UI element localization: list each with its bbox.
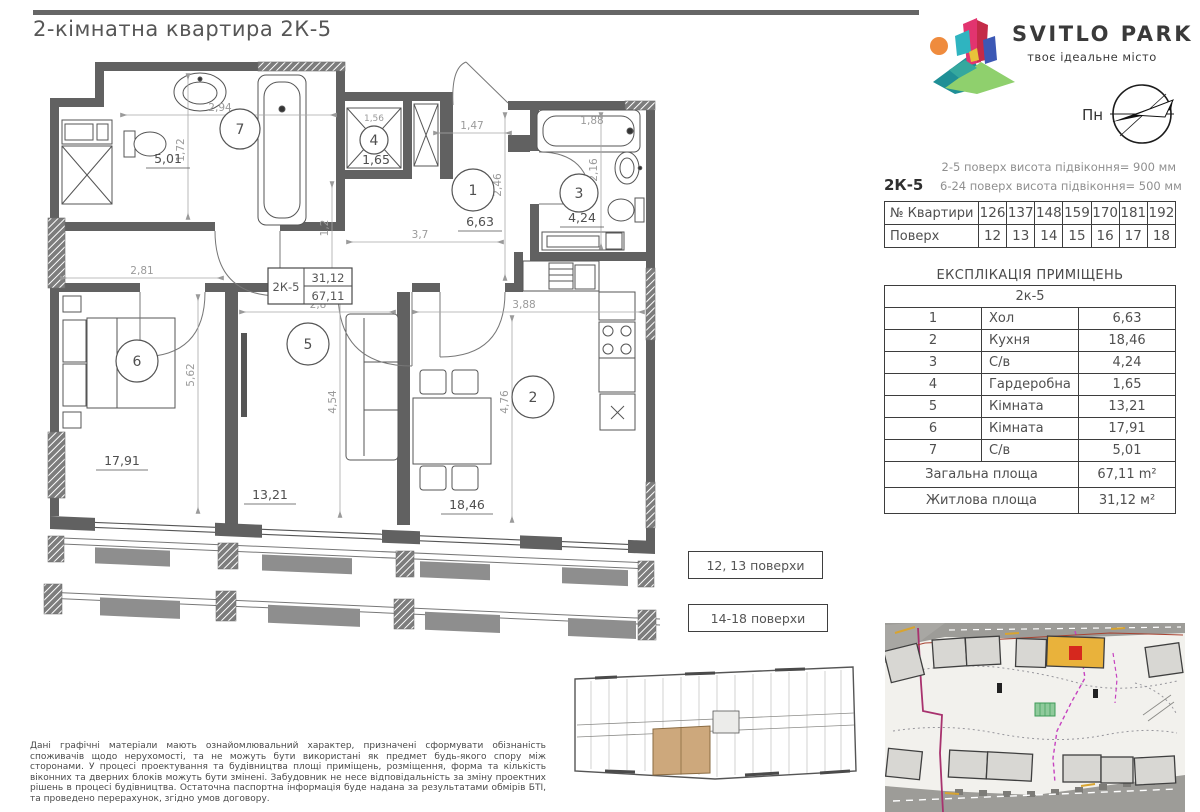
sofa: [346, 314, 398, 460]
explication-table: 2к-5 1Хол6,63 2Кухня18,46 3С/в4,24 4Гард…: [884, 285, 1176, 514]
svitlo-park-logo-icon: [925, 10, 1017, 94]
top-divider: [33, 10, 919, 15]
highlighted-building: [1046, 636, 1104, 668]
room-num: 5: [885, 396, 982, 418]
room-num: 2: [885, 330, 982, 352]
sill-note-1: 2-5 поверх висота підвіконня= 900 мм: [940, 160, 1176, 174]
brand-tagline: твоє ідеальне місто: [1012, 50, 1172, 64]
area-7: 5,01: [154, 151, 182, 166]
dim: 1,56: [364, 114, 384, 124]
floor-number: 14: [1035, 225, 1063, 248]
room-area: 13,21: [1079, 396, 1176, 418]
apartment-number: 170: [1091, 202, 1119, 225]
room-name: Кухня: [982, 330, 1079, 352]
table-row: 3С/в4,24: [885, 352, 1176, 374]
total-area-value: 67,11 m²: [1079, 462, 1176, 488]
apartment-number: 181: [1119, 202, 1147, 225]
explication-unit-header: 2к-5: [885, 286, 1176, 308]
compass-label: Пн: [1082, 106, 1103, 124]
apartments-table: № Квартири 126 137 148 159 170 181 192 П…: [884, 201, 1176, 248]
floor-number: 16: [1091, 225, 1119, 248]
room-number-1: 1: [469, 183, 478, 199]
apartment-number: 148: [1035, 202, 1063, 225]
room-number-6: 6: [133, 354, 142, 370]
unit-code: 2К-5: [884, 176, 923, 194]
room-num: 1: [885, 308, 982, 330]
floors-14-18-label: 14-18 поверхи: [688, 604, 828, 632]
dim: 4,54: [327, 390, 339, 414]
table-row: 7С/в5,01: [885, 440, 1176, 462]
floor-number: 15: [1063, 225, 1091, 248]
site-plan: [885, 623, 1185, 812]
dim: 2,81: [130, 265, 153, 277]
floor-number: 13: [1007, 225, 1035, 248]
dim: 5,62: [185, 363, 197, 386]
page-title: 2-кімнатна квартира 2К-5: [33, 17, 332, 41]
dim: 3,88: [512, 299, 535, 311]
page: 2-кімнатна квартира 2К-5 SVITLO PARK тво…: [0, 0, 1200, 812]
floors-row-label: Поверх: [885, 225, 979, 248]
apartment-number: 159: [1063, 202, 1091, 225]
tv: [241, 333, 247, 417]
table-row: Загальна площа67,11 m²: [885, 462, 1176, 488]
brand-name: SVITLO PARK: [1012, 22, 1193, 46]
apartment-number: 137: [1007, 202, 1035, 225]
explication-title: ЕКСПЛІКАЦІЯ ПРИМІЩЕНЬ: [884, 268, 1176, 283]
room-number-4: 4: [370, 133, 379, 149]
room-num: 6: [885, 418, 982, 440]
stamp-total: 67,11: [312, 289, 345, 303]
room-name: С/в: [982, 440, 1079, 462]
building-key-plan: [565, 663, 880, 808]
room-number-7: 7: [236, 122, 245, 138]
area-5: 13,21: [252, 487, 288, 502]
room-area: 18,46: [1079, 330, 1176, 352]
apartment-number: 192: [1147, 202, 1175, 225]
floor-number: 17: [1119, 225, 1147, 248]
area-3: 4,24: [568, 210, 596, 225]
room-num: 7: [885, 440, 982, 462]
room-name: Гардеробна: [982, 374, 1079, 396]
room-name: Кімната: [982, 396, 1079, 418]
room-num: 4: [885, 374, 982, 396]
room-num: 3: [885, 352, 982, 374]
table-row: 1Хол6,63: [885, 308, 1176, 330]
area-1: 6,63: [466, 214, 494, 229]
floor-number: 18: [1147, 225, 1175, 248]
room-area: 4,24: [1079, 352, 1176, 374]
room-number-2: 2: [529, 390, 538, 406]
room-name: Хол: [982, 308, 1079, 330]
apartments-row-label: № Квартири: [885, 202, 979, 225]
dim: 3,7: [412, 229, 429, 241]
room-name: Кімната: [982, 418, 1079, 440]
table-row: 6Кімната17,91: [885, 418, 1176, 440]
room-area: 6,63: [1079, 308, 1176, 330]
disclaimer-text: Дані графічні матеріали мають ознайомлюв…: [30, 741, 546, 805]
room-area: 17,91: [1079, 418, 1176, 440]
room-name: С/в: [982, 352, 1079, 374]
bathroom7-fixtures: [124, 73, 306, 225]
table-row: № Квартири 126 137 148 159 170 181 192: [885, 202, 1176, 225]
living-area-value: 31,12 м²: [1079, 488, 1176, 514]
floors-12-13-label: 12, 13 поверхи: [688, 551, 823, 579]
playground: [1035, 703, 1055, 716]
total-area-label: Загальна площа: [885, 462, 1079, 488]
table-row: Житлова площа31,12 м²: [885, 488, 1176, 514]
compass-icon: Пн: [1082, 76, 1187, 154]
area-4: 1,65: [362, 152, 390, 167]
dim: 4,76: [499, 390, 511, 414]
room-area: 1,65: [1079, 374, 1176, 396]
dim: 1,47: [460, 120, 483, 132]
dining-set: [413, 370, 491, 490]
living-area-label: Житлова площа: [885, 488, 1079, 514]
highlighted-apartment: [653, 726, 710, 775]
room-number-3: 3: [575, 186, 584, 202]
stamp-unit: 2К-5: [273, 280, 300, 294]
balcony-strip-12-13: [48, 536, 654, 587]
table-row: Поверх 12 13 14 15 16 17 18: [885, 225, 1176, 248]
table-row: 2Кухня18,46: [885, 330, 1176, 352]
area-2: 18,46: [449, 497, 485, 512]
stamp-living: 31,12: [312, 271, 345, 285]
area-6: 17,91: [104, 453, 140, 468]
table-row: 5Кімната13,21: [885, 396, 1176, 418]
plan-stamp: 2К-5 31,12 67,11: [268, 268, 352, 304]
table-row: 4Гардеробна1,65: [885, 374, 1176, 396]
section-marker: [1069, 646, 1082, 660]
room-area: 5,01: [1079, 440, 1176, 462]
sill-note-2: 6-24 поверх висота підвіконня= 500 мм: [940, 179, 1176, 193]
floor-plan: 2,94 1,72 1,56 1,2 1,47 2,46 3,7 1,88 2,…: [30, 50, 680, 650]
apartment-number: 126: [979, 202, 1007, 225]
dim: 1,88: [580, 115, 603, 127]
room-number-5: 5: [304, 337, 313, 353]
facade-strip-14-18: [44, 584, 660, 640]
table-row: 2к-5: [885, 286, 1176, 308]
dim: 1,2: [319, 220, 331, 237]
floor-number: 12: [979, 225, 1007, 248]
